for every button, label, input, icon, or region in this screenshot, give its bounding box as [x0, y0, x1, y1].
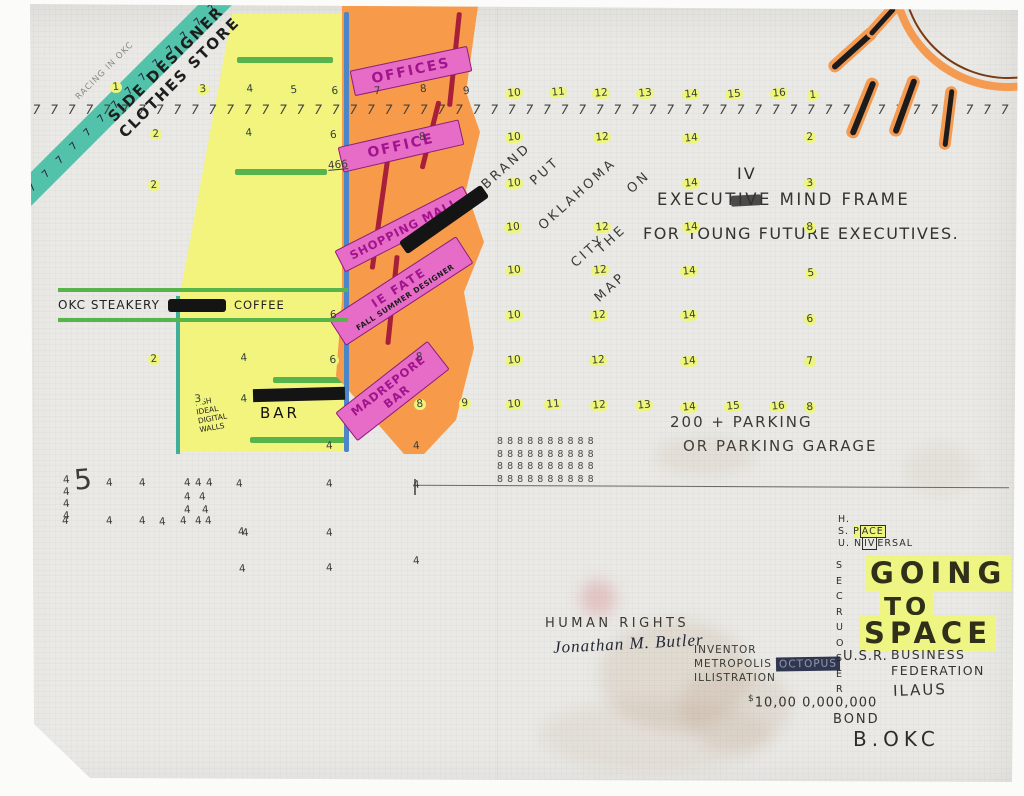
grid-number: 2 — [804, 132, 817, 144]
grid-number: 8 — [414, 399, 427, 411]
grid-numbers-layer: 1345678910111213141516124681012142101010… — [0, 0, 1024, 796]
grid-number: 4 — [413, 441, 421, 453]
grid-number: 4 — [206, 478, 214, 490]
grid-number: 12 — [593, 221, 612, 234]
grid-number: 13 — [636, 87, 655, 100]
graph-paper-sheet: OFFICES OFFICE SHOPPING MALL IE FATE FAL… — [0, 0, 1024, 796]
grid-number: 4 — [106, 516, 114, 528]
grid-number: 4 — [62, 516, 70, 528]
grid-number: 8 — [416, 352, 424, 364]
grid-number: 4 — [195, 516, 203, 528]
grid-number: 4 — [326, 441, 334, 453]
grid-number: 4 — [159, 517, 167, 529]
grid-number: 15 — [724, 400, 743, 413]
grid-number: 10 — [504, 221, 523, 234]
grid-number: 14 — [682, 88, 701, 101]
grid-number: 9 — [459, 398, 472, 410]
grid-number: 4 — [413, 480, 421, 492]
grid-number: 10 — [505, 177, 524, 190]
grid-number: 4 — [180, 516, 188, 528]
grid-number: 14 — [680, 401, 699, 414]
grid-number: 4 — [199, 492, 207, 504]
grid-number: 12 — [591, 264, 610, 277]
grid-number: 12 — [590, 399, 609, 412]
grid-number: 1 — [110, 82, 123, 94]
grid-number: 4 — [242, 528, 250, 540]
grid-number: 7 — [374, 86, 382, 98]
grid-number: 4 — [244, 84, 257, 96]
grid-number: 2 — [148, 354, 161, 366]
grid-number: 4 — [184, 492, 192, 504]
grid-number: 3 — [804, 178, 817, 190]
grid-number: 14 — [682, 132, 701, 145]
grid-number: 6 — [330, 130, 338, 142]
grid-number: 13 — [635, 399, 654, 412]
grid-number: 3 — [192, 394, 205, 406]
grid-number: 10 — [505, 398, 524, 411]
grid-number: 6 — [327, 355, 340, 367]
grid-number: 4 — [243, 128, 256, 140]
grid-number: 466 — [328, 159, 349, 172]
grid-number: 1 — [807, 90, 820, 102]
grid-number: 8 — [804, 402, 817, 414]
grid-number: 4 — [236, 479, 244, 491]
grid-number: 4 — [184, 478, 192, 490]
grid-number: 4 — [195, 478, 203, 490]
grid-number: 9 — [463, 86, 471, 98]
grid-number: 12 — [593, 131, 612, 144]
grid-number: 4 — [63, 475, 71, 487]
grid-number: 5 — [288, 85, 301, 97]
grid-number: 4 — [63, 499, 71, 511]
grid-number: 8 — [419, 132, 427, 144]
grid-number: 11 — [544, 398, 563, 411]
grid-number: 6 — [330, 310, 338, 322]
grid-number: 15 — [725, 88, 744, 101]
grid-number: 10 — [505, 354, 524, 367]
grid-number: 5 — [805, 268, 818, 280]
grid-number: 12 — [590, 309, 609, 322]
grid-number: 10 — [505, 131, 524, 144]
grid-number: 2 — [148, 180, 161, 192]
grid-number: 4 — [413, 556, 421, 568]
grid-number: 6 — [804, 314, 817, 326]
grid-number: 14 — [680, 309, 699, 322]
grid-number: 4 — [326, 528, 334, 540]
grid-number: 7 — [804, 356, 817, 368]
grid-number: 4 — [239, 564, 247, 576]
grid-number: 4 — [205, 516, 213, 528]
grid-number: 6 — [329, 86, 342, 98]
grid-number: 12 — [589, 354, 608, 367]
grid-number: 4 — [139, 516, 147, 528]
grid-number: 14 — [680, 355, 699, 368]
grid-number: 5 — [74, 473, 93, 486]
grid-number: 10 — [505, 264, 524, 277]
grid-number: 16 — [770, 87, 789, 100]
grid-number: 4 — [326, 479, 334, 491]
grid-number: 4 — [238, 394, 251, 406]
grid-number: 14 — [680, 265, 699, 278]
grid-number: 4 — [63, 487, 71, 499]
grid-number: 14 — [682, 221, 701, 234]
grid-number: 4 — [139, 478, 147, 490]
grid-number: 8 — [420, 84, 428, 96]
grid-number: 14 — [682, 177, 701, 190]
photo-of-drawing: OFFICES OFFICE SHOPPING MALL IE FATE FAL… — [0, 0, 1024, 796]
grid-number: 8 — [804, 222, 817, 234]
grid-number: 4 — [326, 563, 334, 575]
grid-number: 11 — [549, 86, 568, 99]
grid-number: 4 — [106, 478, 114, 490]
grid-number: 10 — [505, 309, 524, 322]
grid-number: 10 — [505, 87, 524, 100]
grid-number: 3 — [197, 84, 210, 96]
grid-number: 2 — [150, 129, 163, 141]
grid-number: 16 — [769, 400, 788, 413]
grid-number: 4 — [238, 353, 251, 365]
grid-number: 12 — [592, 87, 611, 100]
